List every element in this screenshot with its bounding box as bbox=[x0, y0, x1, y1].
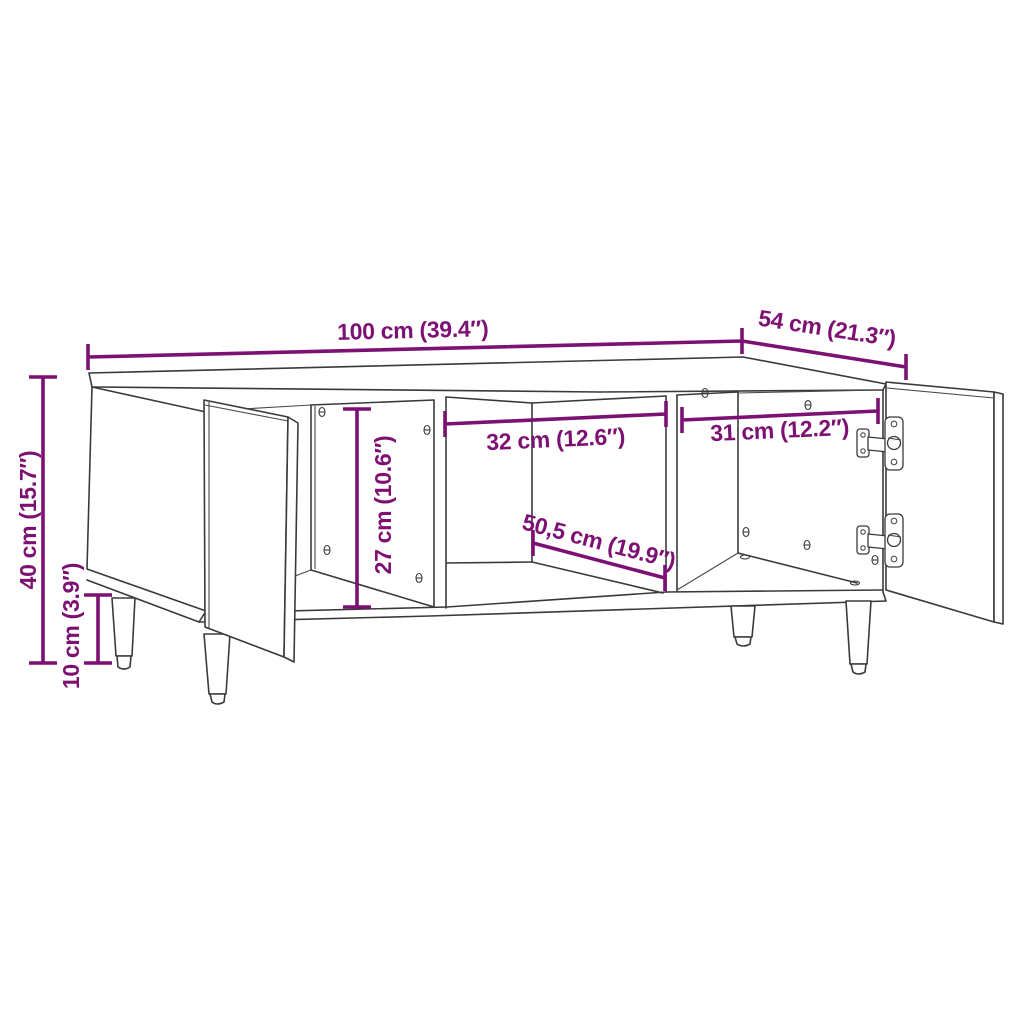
leg-front-left bbox=[112, 598, 135, 669]
screw-icon bbox=[872, 556, 878, 565]
screw-icon bbox=[324, 546, 330, 555]
leg-front-center bbox=[204, 634, 230, 704]
left-door-open bbox=[204, 400, 298, 662]
bottom-rail bbox=[199, 590, 886, 622]
dimension-width-label: 100 cm (39.4″) bbox=[337, 315, 489, 345]
cabinet-top bbox=[89, 357, 886, 392]
left-side-panel bbox=[87, 387, 206, 622]
dimension-height-label: 40 cm (15.7″) bbox=[15, 451, 41, 590]
hinge-icon bbox=[857, 514, 903, 567]
dimension-middle-width-label: 32 cm (12.6″) bbox=[486, 423, 626, 455]
product-dimension-diagram: 100 cm (39.4″) 54 cm (21.3″) 40 cm (15.7… bbox=[0, 0, 1024, 1024]
dimension-width: 100 cm (39.4″) bbox=[88, 315, 742, 370]
dimension-leg-height: 10 cm (3.9″) bbox=[58, 563, 112, 689]
screw-hole-icon bbox=[741, 555, 750, 559]
leg-back-right bbox=[731, 606, 755, 646]
dimension-right-width-label: 31 cm (12.2″) bbox=[710, 414, 850, 446]
cabinet-diagram: 100 cm (39.4″) 54 cm (21.3″) 40 cm (15.7… bbox=[0, 0, 1024, 1024]
screw-icon bbox=[743, 528, 749, 537]
dimension-middle-width: 32 cm (12.6″) bbox=[445, 401, 666, 455]
right-door-open bbox=[886, 382, 1003, 624]
screw-icon bbox=[702, 389, 708, 398]
screw-icon bbox=[424, 426, 430, 435]
dimension-leg-height-label: 10 cm (3.9″) bbox=[58, 563, 84, 689]
leg-front-right bbox=[846, 601, 871, 674]
dimension-height: 40 cm (15.7″) bbox=[15, 377, 57, 663]
screw-icon bbox=[805, 401, 811, 410]
dimension-compartment-height: 27 cm (10.6″) bbox=[343, 409, 396, 607]
dimension-depth-label: 54 cm (21.3″) bbox=[757, 305, 898, 352]
dimension-right-width: 31 cm (12.2″) bbox=[682, 398, 878, 446]
dimension-depth: 54 cm (21.3″) bbox=[742, 305, 906, 380]
hinge-icon bbox=[857, 417, 903, 470]
dimension-compartment-height-label: 27 cm (10.6″) bbox=[370, 436, 396, 575]
screw-icon bbox=[804, 541, 810, 550]
screw-icon bbox=[416, 574, 422, 583]
screw-icon bbox=[319, 408, 325, 417]
